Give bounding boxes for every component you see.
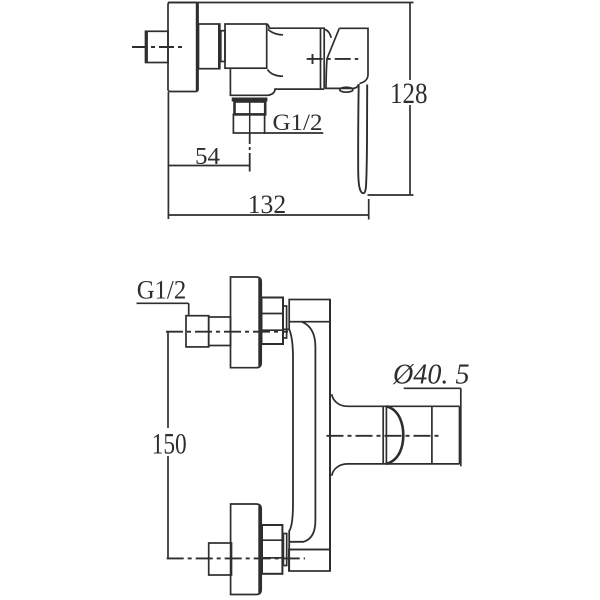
svg-text:132: 132 bbox=[248, 190, 287, 219]
svg-text:54: 54 bbox=[195, 144, 220, 170]
svg-text:G1/2: G1/2 bbox=[273, 110, 323, 135]
svg-text:Ø40. 5: Ø40. 5 bbox=[392, 358, 469, 390]
svg-text:128: 128 bbox=[390, 77, 428, 110]
svg-text:150: 150 bbox=[152, 427, 187, 460]
svg-text:G1/2: G1/2 bbox=[137, 276, 187, 305]
